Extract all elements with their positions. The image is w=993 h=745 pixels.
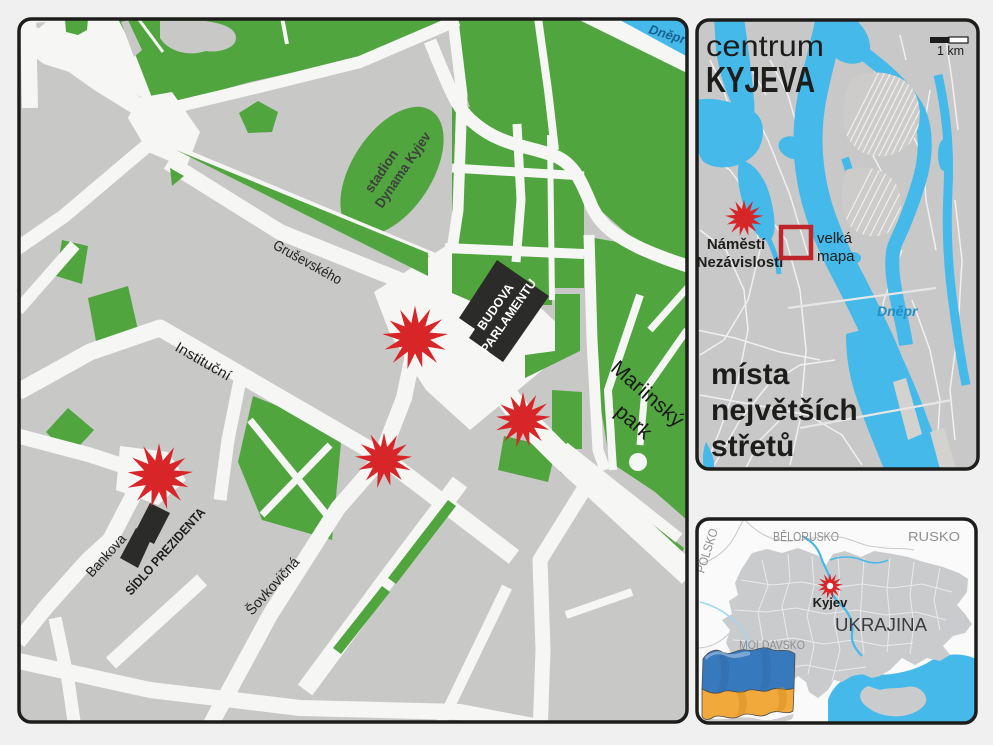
svg-text:Dněpr: Dněpr	[877, 303, 919, 319]
svg-text:1 km: 1 km	[937, 44, 964, 58]
svg-text:střetů: střetů	[711, 430, 794, 463]
svg-text:místa: místa	[711, 358, 790, 391]
svg-text:UKRAJINA: UKRAJINA	[835, 615, 927, 635]
svg-text:Náměstí: Náměstí	[707, 236, 766, 253]
svg-text:velká: velká	[817, 230, 853, 247]
svg-text:RUSKO: RUSKO	[908, 530, 960, 544]
svg-text:Nezávislosti: Nezávislosti	[697, 254, 784, 271]
svg-text:Kyjev: Kyjev	[813, 595, 848, 610]
svg-text:největších: největších	[711, 394, 858, 427]
svg-text:BĚLORUSKO: BĚLORUSKO	[773, 529, 839, 544]
svg-text:KYJEVA: KYJEVA	[706, 59, 815, 100]
svg-text:mapa: mapa	[817, 248, 855, 265]
